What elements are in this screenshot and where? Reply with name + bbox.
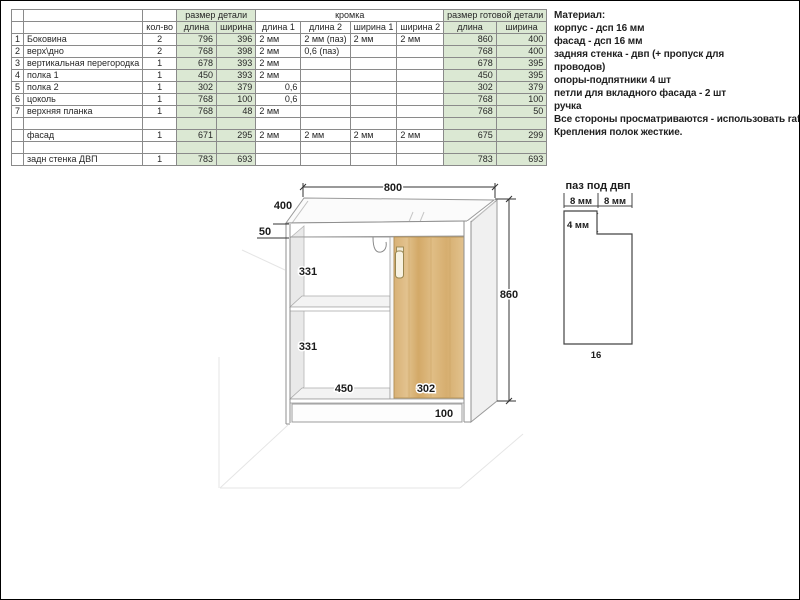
table-cell: 2 мм [397, 130, 444, 142]
door-handle [396, 251, 404, 278]
table-cell [12, 154, 24, 166]
table-cell: задн стенка ДВП [24, 154, 143, 166]
table-cell [24, 118, 143, 130]
table-cell: 379 [496, 82, 546, 94]
table-cell [397, 154, 444, 166]
table-header-cell [12, 10, 24, 22]
table-row [12, 142, 547, 154]
table-cell: 0,6 [256, 94, 301, 106]
table-cell [177, 142, 217, 154]
table-cell [444, 142, 497, 154]
dim-top-strip-label: 50 [259, 226, 271, 238]
table-header-edge: кромка [256, 10, 444, 22]
table-cell [24, 142, 143, 154]
table-row: 1Боковина27963962 мм2 мм (паз)2 мм2 мм86… [12, 34, 547, 46]
table-cell: 2 мм [256, 58, 301, 70]
table-cell: 48 [217, 106, 256, 118]
table-cell: 100 [217, 94, 256, 106]
table-cell [397, 142, 444, 154]
table-cell [301, 106, 350, 118]
table-cell: 0,6 [256, 82, 301, 94]
table-row: задн стенка ДВП1783693783693 [12, 154, 547, 166]
table-cell: верхняя планка [24, 106, 143, 118]
table-cell: 671 [177, 130, 217, 142]
dim-left-compartment-label: 450 [335, 383, 353, 395]
table-cell: 675 [444, 130, 497, 142]
table-cell: 50 [496, 106, 546, 118]
table-cell: 400 [496, 46, 546, 58]
table-cell [256, 154, 301, 166]
table-cell: 678 [444, 58, 497, 70]
table-cell: 100 [496, 94, 546, 106]
table-cell [256, 142, 301, 154]
cabinet-top-face [286, 198, 494, 223]
table-cell: 2 [143, 34, 177, 46]
table-cell: полка 1 [24, 70, 143, 82]
table-cell: 768 [444, 46, 497, 58]
table-cell: 1 [143, 94, 177, 106]
notes-line: ручка [554, 100, 800, 113]
table-cell: 678 [177, 58, 217, 70]
groove-depth-label: 4 мм [567, 220, 589, 231]
table-cell: 6 [12, 94, 24, 106]
table-cell: 768 [177, 46, 217, 58]
table-cell: 295 [217, 130, 256, 142]
table-header-width: ширина [217, 22, 256, 34]
table-cell: 2 мм [350, 130, 397, 142]
table-cell [350, 46, 397, 58]
table-cell: 400 [496, 34, 546, 46]
table-cell: 1 [143, 82, 177, 94]
table-cell: 5 [12, 82, 24, 94]
table-header-finished-size: размер готовой детали [444, 10, 547, 22]
table-cell: 4 [12, 70, 24, 82]
table-cell: 768 [444, 94, 497, 106]
table-cell [350, 142, 397, 154]
table-cell: 768 [177, 94, 217, 106]
table-cell [350, 94, 397, 106]
table-cell: 393 [217, 70, 256, 82]
table-cell: 398 [217, 46, 256, 58]
groove-title: паз под двп [565, 180, 630, 192]
cabinet-door [394, 237, 464, 398]
table-cell: 783 [444, 154, 497, 166]
table-header-cell [24, 10, 143, 22]
dim-depth-label: 400 [274, 200, 292, 212]
table-cell [397, 82, 444, 94]
table-cell: 860 [444, 34, 497, 46]
table-cell [350, 154, 397, 166]
table-header-edge-l2: длина 2 [301, 22, 350, 34]
table-cell: 3 [12, 58, 24, 70]
table-cell: 2 [12, 46, 24, 58]
table-cell: фасад [24, 130, 143, 142]
table-row: 6цоколь17681000,6768100 [12, 94, 547, 106]
table-cell: верх\дно [24, 46, 143, 58]
notes-line: задняя стенка - двп (+ пропуск для [554, 48, 800, 61]
table-cell [397, 46, 444, 58]
table-cell [350, 118, 397, 130]
table-cell: 2 мм [301, 130, 350, 142]
table-cell [496, 142, 546, 154]
table-cell: полка 2 [24, 82, 143, 94]
parts-table: размер детали кромка размер готовой дета… [11, 9, 547, 166]
table-cell [256, 118, 301, 130]
table-cell: 393 [217, 58, 256, 70]
table-cell: 783 [177, 154, 217, 166]
table-cell: 2 мм [256, 46, 301, 58]
shelf-front-edge [290, 307, 390, 311]
table-cell: 2 мм [397, 34, 444, 46]
table-cell [397, 118, 444, 130]
table-cell: вертикальная перегородка [24, 58, 143, 70]
table-cell: 1 [143, 58, 177, 70]
dim-plinth-label: 100 [435, 408, 453, 420]
table-header-fin-length: длина [444, 22, 497, 34]
dim-door-width-label: 302 [417, 383, 435, 395]
table-header-edge-w2: ширина 2 [397, 22, 444, 34]
table-header-edge-l1: длина 1 [256, 22, 301, 34]
table-cell [301, 58, 350, 70]
table-cell: 2 мм [350, 34, 397, 46]
notes-line: петли для вкладного фасада - 2 шт [554, 87, 800, 100]
table-cell: 0,6 (паз) [301, 46, 350, 58]
table-cell [143, 142, 177, 154]
table-cell: 2 мм [256, 106, 301, 118]
left-interior-wall [290, 226, 304, 399]
table-cell: Боковина [24, 34, 143, 46]
table-row: фасад16712952 мм2 мм2 мм2 мм675299 [12, 130, 547, 142]
table-cell [397, 106, 444, 118]
groove-thickness-label: 16 [591, 350, 602, 361]
notes-line: Крепления полок жесткие. [554, 126, 800, 139]
table-cell [397, 94, 444, 106]
table-row: 5полка 213023790,6302379 [12, 82, 547, 94]
table-cell: 302 [444, 82, 497, 94]
table-cell [496, 118, 546, 130]
table-cell: 1 [12, 34, 24, 46]
table-cell: 1 [143, 154, 177, 166]
table-cell: 2 мм [256, 34, 301, 46]
table-cell [177, 118, 217, 130]
dim-width-label: 800 [384, 182, 402, 194]
cabinet-drawing: 800 400 50 331 331 450 302 100 860 паз п… [1, 166, 800, 600]
table-header-length: длина [177, 22, 217, 34]
table-cell [143, 118, 177, 130]
table-cell: 395 [496, 58, 546, 70]
dim-shelf-gap-2-label: 331 [299, 341, 317, 353]
dim-shelf-gap-1-label: 331 [299, 266, 317, 278]
table-cell [350, 58, 397, 70]
table-cell: 7 [12, 106, 24, 118]
table-cell [350, 70, 397, 82]
groove-right-label: 8 мм [604, 196, 626, 207]
notes-line: фасад - дсп 16 мм [554, 35, 800, 48]
table-cell [397, 58, 444, 70]
table-header-cell [24, 22, 143, 34]
table-cell [444, 118, 497, 130]
table-cell: 2 мм [256, 70, 301, 82]
table-header-fin-width: ширина [496, 22, 546, 34]
table-cell [301, 94, 350, 106]
table-cell: 450 [177, 70, 217, 82]
table-cell [12, 130, 24, 142]
table-row: 4полка 114503932 мм450395 [12, 70, 547, 82]
table-header-edge-w1: ширина 1 [350, 22, 397, 34]
table-group-header-row: размер детали кромка размер готовой дета… [12, 10, 547, 22]
table-cell [397, 70, 444, 82]
table-cell: 450 [444, 70, 497, 82]
table-cell: 693 [217, 154, 256, 166]
table-cell [217, 142, 256, 154]
table-cell [350, 106, 397, 118]
notes-line: проводов) [554, 61, 800, 74]
table-header-cell [12, 22, 24, 34]
table-cell: 768 [177, 106, 217, 118]
table-cell [301, 82, 350, 94]
table-header-part-size: размер детали [177, 10, 256, 22]
table-cell: 299 [496, 130, 546, 142]
groove-left-label: 8 мм [570, 196, 592, 207]
table-row: 7верхняя планка1768482 мм76850 [12, 106, 547, 118]
table-cell: 379 [217, 82, 256, 94]
table-cell: 1 [143, 130, 177, 142]
table-cell: 2 мм (паз) [301, 34, 350, 46]
dim-height-label: 860 [500, 289, 518, 301]
table-cell [301, 70, 350, 82]
bottom-panel-front-edge [290, 399, 464, 403]
table-cell: 796 [177, 34, 217, 46]
table-sub-header-row: кол-во длина ширина длина 1 длина 2 шири… [12, 22, 547, 34]
table-cell [301, 118, 350, 130]
vertical-divider [390, 237, 394, 399]
table-header-qty: кол-во [143, 22, 177, 34]
table-cell [301, 154, 350, 166]
notes-line: опоры-подпятники 4 шт [554, 74, 800, 87]
table-cell [12, 142, 24, 154]
table-cell: 302 [177, 82, 217, 94]
table-cell [350, 82, 397, 94]
table-cell: 693 [496, 154, 546, 166]
notes-line: корпус - дсп 16 мм [554, 22, 800, 35]
table-cell: 1 [143, 106, 177, 118]
shelf-top-face [290, 296, 390, 307]
table-cell [301, 142, 350, 154]
table-cell: 2 [143, 46, 177, 58]
notes-line: Материал: [554, 9, 800, 22]
table-cell [217, 118, 256, 130]
table-row [12, 118, 547, 130]
table-row: 3вертикальная перегородка16783932 мм6783… [12, 58, 547, 70]
table-header-cell [143, 10, 177, 22]
table-cell: 1 [143, 70, 177, 82]
table-cell: 396 [217, 34, 256, 46]
cabinet-right-side-panel [471, 200, 497, 422]
table-cell: 768 [444, 106, 497, 118]
groove-detail: паз под двп 8 мм 8 мм 4 мм 16 [564, 180, 632, 361]
material-notes: Материал:корпус - дсп 16 ммфасад - дсп 1… [554, 9, 800, 139]
spec-sheet-page: размер детали кромка размер готовой дета… [0, 0, 800, 600]
table-cell: цоколь [24, 94, 143, 106]
notes-line: Все стороны просматриваются - использова… [554, 113, 800, 126]
table-row: 2верх\дно27683982 мм0,6 (паз)768400 [12, 46, 547, 58]
table-cell: 2 мм [256, 130, 301, 142]
table-cell [12, 118, 24, 130]
table-cell: 395 [496, 70, 546, 82]
